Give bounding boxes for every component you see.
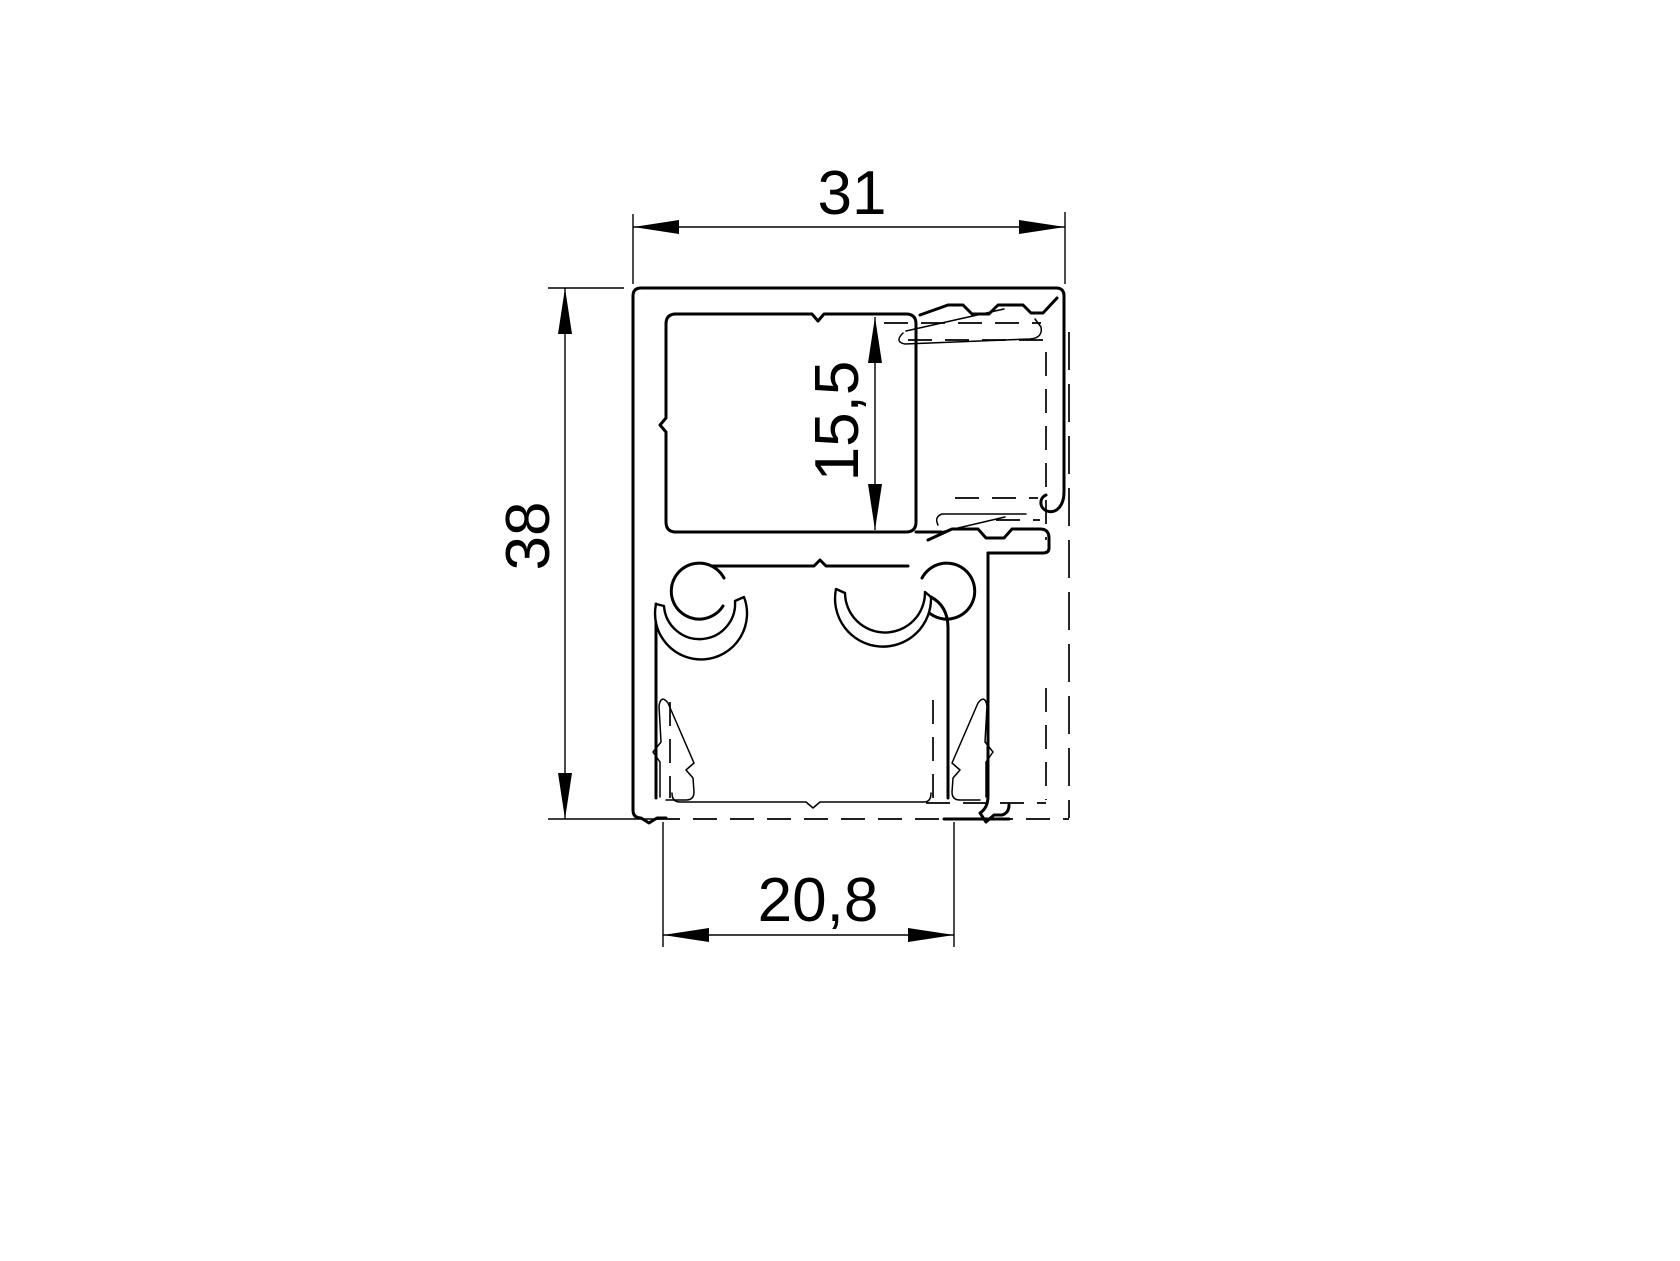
top-snap-serration	[920, 298, 1057, 315]
step-ledge	[988, 548, 1049, 553]
screw-boss-circle-left	[671, 563, 724, 619]
mid-snap-serration	[928, 529, 1049, 547]
dim38-arrow-bottom	[558, 773, 572, 819]
boss-support-line	[713, 560, 908, 566]
profile-drawing-svg: 31 38 15,5 20,8	[0, 0, 1680, 1261]
step-wall-and-foot	[980, 553, 1009, 822]
channel-floor-line	[672, 793, 931, 808]
dim38-arrow-top	[558, 288, 572, 334]
dim155-arrow-bottom	[868, 484, 882, 530]
lower-channel-right-wall	[931, 597, 948, 798]
screw-boss-cradle-left	[655, 597, 747, 659]
dimension-overall-width: 31	[633, 159, 1065, 284]
dim38-value: 38	[494, 502, 563, 571]
dim31-arrow-right	[1019, 220, 1065, 234]
dimension-cavity-height: 15,5	[803, 317, 882, 530]
dim208-arrow-right	[908, 928, 954, 942]
dimension-bottom-width: 20,8	[663, 822, 954, 947]
dim208-value: 20,8	[758, 866, 879, 935]
left-spring-clip	[653, 699, 694, 800]
dim208-arrow-left	[663, 928, 709, 942]
dimension-overall-height: 38	[494, 288, 660, 819]
dim31-arrow-left	[633, 220, 679, 234]
screw-boss-cradle-right	[835, 589, 931, 647]
dim155-arrow-top	[868, 317, 882, 363]
dim155-value: 15,5	[803, 361, 872, 482]
technical-drawing-canvas: 31 38 15,5 20,8	[0, 0, 1680, 1261]
dim31-value: 31	[818, 159, 887, 228]
